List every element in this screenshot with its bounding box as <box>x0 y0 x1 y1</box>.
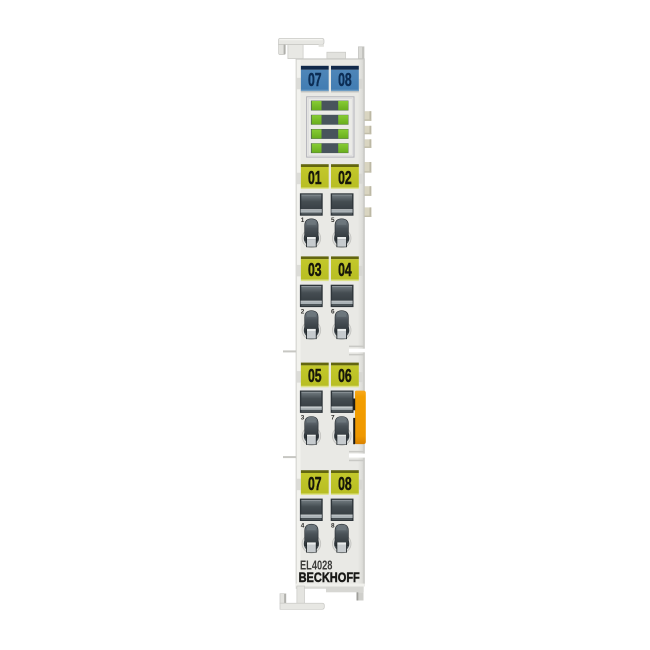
svg-text:3: 3 <box>301 414 305 421</box>
svg-text:01: 01 <box>308 167 322 188</box>
svg-text:4: 4 <box>301 522 305 529</box>
svg-text:8: 8 <box>331 522 335 529</box>
svg-text:04: 04 <box>338 259 352 280</box>
svg-text:2: 2 <box>301 309 305 316</box>
svg-text:07: 07 <box>308 473 322 494</box>
svg-text:6: 6 <box>331 309 335 316</box>
svg-text:5: 5 <box>331 217 335 224</box>
svg-text:05: 05 <box>308 365 322 386</box>
svg-text:08: 08 <box>338 70 352 91</box>
svg-text:03: 03 <box>308 259 322 280</box>
svg-text:1: 1 <box>301 217 305 224</box>
svg-text:7: 7 <box>331 414 335 421</box>
svg-text:06: 06 <box>338 365 352 386</box>
svg-text:08: 08 <box>338 473 352 494</box>
svg-text:07: 07 <box>308 70 322 91</box>
svg-text:BECKHOFF: BECKHOFF <box>299 570 360 586</box>
svg-text:02: 02 <box>338 167 352 188</box>
